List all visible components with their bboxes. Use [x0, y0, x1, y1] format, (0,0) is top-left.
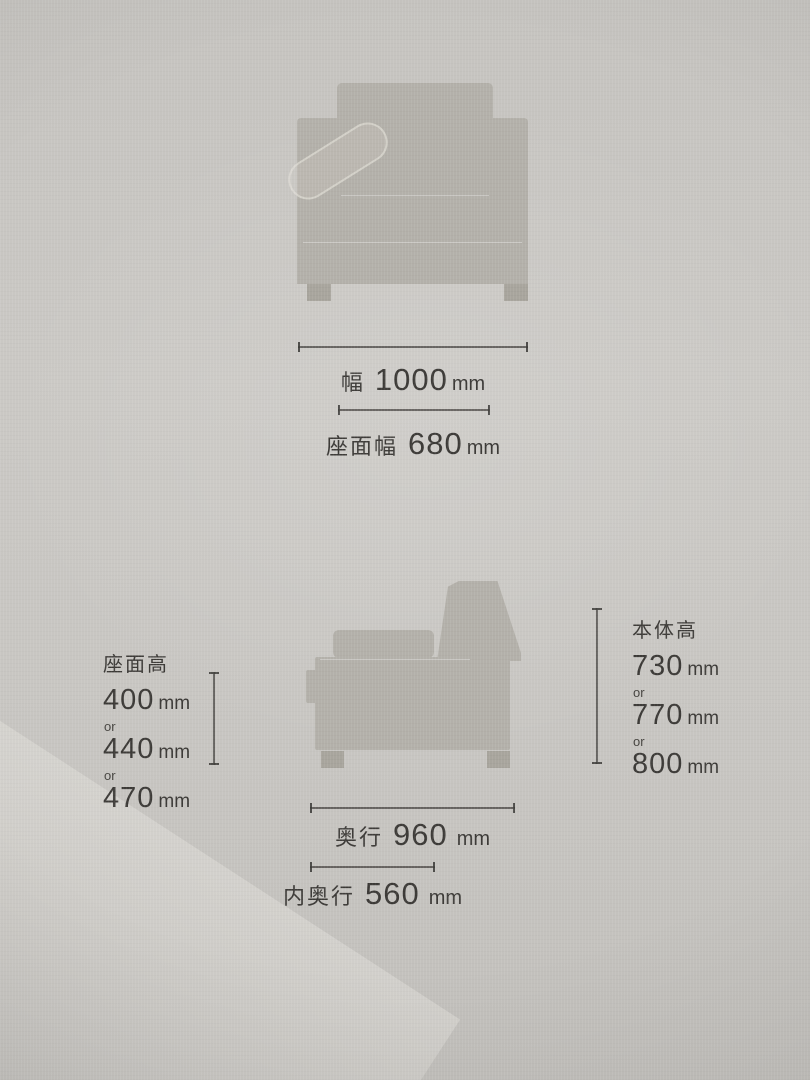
seat-height-or-2: or [104, 769, 190, 782]
depth-value: 960 [393, 817, 448, 853]
side-armrest-cushion [333, 630, 434, 658]
body-height-dimension-line [596, 608, 598, 764]
seat-height-option-3: 470 mm [103, 783, 190, 817]
body-height-unit-2: mm [687, 703, 719, 734]
seat-width-dimension-line [338, 409, 490, 411]
width-value: 1000 [375, 362, 448, 398]
side-backrest [437, 581, 521, 661]
depth-label: 奥行 [335, 820, 383, 852]
seat-height-value-3: 470 [103, 783, 154, 814]
inner-depth-unit: mm [429, 887, 462, 910]
width-label: 幅 [341, 365, 365, 397]
side-body [315, 657, 510, 750]
body-height-group: 本体高 730 mm or 770 mm or 800 mm [632, 614, 719, 783]
width-dimension-line [298, 346, 528, 348]
body-height-value-2: 770 [632, 700, 683, 731]
seat-height-group: 座面高 400 mm or 440 mm or 470 mm [103, 648, 190, 817]
front-foot-left [307, 284, 331, 301]
seat-width-caption: 座面幅 680 mm [297, 426, 529, 462]
front-seat [297, 237, 528, 284]
seat-width-unit: mm [467, 437, 500, 460]
inner-depth-caption: 内奥行 560 mm [270, 876, 475, 912]
front-seat-seam [303, 242, 522, 243]
side-armrest-front-edge [306, 670, 317, 703]
body-height-value-1: 730 [632, 651, 683, 682]
side-foot-right [487, 751, 510, 768]
body-height-option-1: 730 mm [632, 651, 719, 685]
seat-height-value-2: 440 [103, 734, 154, 765]
seat-height-dimension-line [213, 672, 215, 765]
body-height-option-3: 800 mm [632, 749, 719, 783]
product-dimension-photo: 幅 1000 mm 座面幅 680 mm 座面高 400 mm or 440 m… [0, 0, 810, 1080]
width-caption: 幅 1000 mm [297, 362, 529, 398]
body-height-label: 本体高 [632, 614, 719, 643]
seat-height-unit-2: mm [158, 737, 190, 768]
seat-width-label: 座面幅 [326, 429, 398, 461]
seat-height-label: 座面高 [103, 648, 190, 677]
body-height-or-1: or [633, 686, 719, 699]
seat-height-unit-3: mm [158, 786, 190, 817]
body-height-option-2: 770 mm [632, 700, 719, 734]
depth-unit: mm [457, 828, 490, 851]
armchair-front-view-illustration [297, 83, 528, 302]
seat-height-option-1: 400 mm [103, 685, 190, 719]
seat-height-or-1: or [104, 720, 190, 733]
front-foot-right [504, 284, 528, 301]
front-cushion-seam [341, 195, 489, 196]
depth-dimension-line [310, 807, 515, 809]
width-unit: mm [452, 373, 485, 396]
inner-depth-label: 内奥行 [283, 879, 355, 911]
seat-height-option-2: 440 mm [103, 734, 190, 768]
armchair-side-view-illustration [306, 581, 515, 768]
side-body-seam [320, 659, 470, 660]
body-height-unit-1: mm [687, 654, 719, 685]
body-height-value-3: 800 [632, 749, 683, 780]
inner-depth-value: 560 [365, 876, 420, 912]
body-height-unit-3: mm [687, 752, 719, 783]
seat-height-value-1: 400 [103, 685, 154, 716]
depth-caption: 奥行 960 mm [307, 817, 518, 853]
side-foot-left [321, 751, 344, 768]
body-height-or-2: or [633, 735, 719, 748]
inner-depth-dimension-line [310, 866, 435, 868]
seat-width-value: 680 [408, 426, 463, 462]
seat-height-unit-1: mm [158, 688, 190, 719]
